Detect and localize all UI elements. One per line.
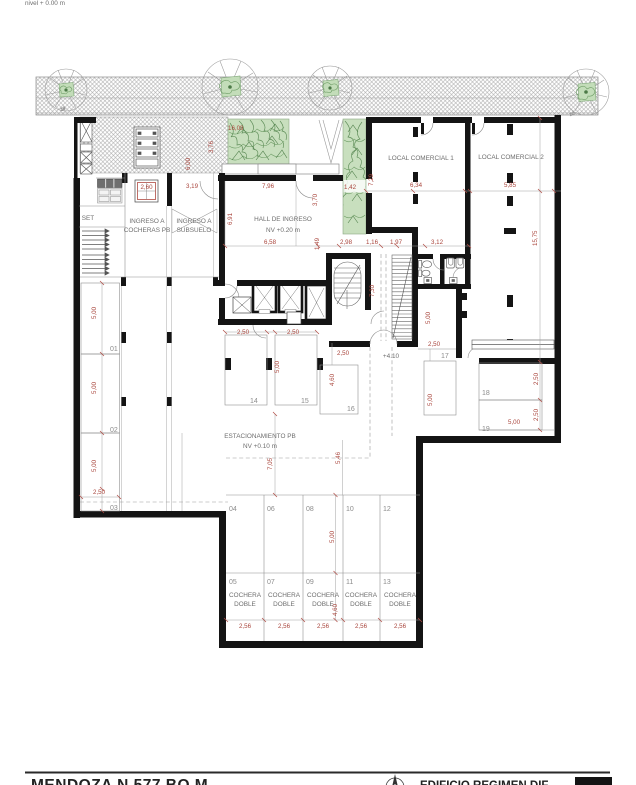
svg-text:06: 06 [267, 506, 275, 513]
svg-text:17: 17 [441, 353, 449, 360]
svg-text:2,98: 2,98 [340, 239, 353, 246]
svg-text:2,50: 2,50 [237, 329, 250, 336]
svg-text:2,50: 2,50 [287, 329, 300, 336]
svg-text:2,56: 2,56 [317, 623, 330, 630]
svg-text:2,56: 2,56 [278, 623, 291, 630]
svg-text:1,97: 1,97 [390, 239, 403, 246]
svg-text:05: 05 [229, 579, 237, 586]
svg-text:2,50: 2,50 [93, 489, 106, 496]
svg-text:5,00: 5,00 [329, 530, 336, 543]
svg-text:2,50: 2,50 [428, 341, 441, 348]
svg-text:16,09: 16,09 [228, 125, 244, 132]
svg-text:3,70: 3,70 [312, 193, 319, 206]
svg-text:nivel + 0.00 m: nivel + 0.00 m [25, 0, 65, 7]
svg-text:DOBLE: DOBLE [234, 601, 256, 608]
svg-text:DOBLE: DOBLE [273, 601, 295, 608]
svg-text:1,49: 1,49 [314, 237, 321, 250]
svg-text:5,46: 5,46 [335, 451, 342, 464]
svg-text:10: 10 [346, 506, 354, 513]
svg-text:2,50: 2,50 [533, 372, 540, 385]
svg-text:COCHERA: COCHERA [307, 592, 340, 599]
svg-text:7,96: 7,96 [262, 183, 275, 190]
svg-text:08: 08 [306, 506, 314, 513]
svg-text:LOCAL COMERCIAL 2: LOCAL COMERCIAL 2 [478, 154, 544, 161]
svg-text:SUBSUELO: SUBSUELO [177, 227, 212, 234]
svg-text:01: 01 [110, 346, 118, 353]
svg-text:4,60: 4,60 [332, 603, 339, 616]
svg-text:SET: SET [82, 215, 95, 222]
svg-text:12: 12 [383, 506, 391, 513]
svg-text:ESTACIONAMIENTO PB: ESTACIONAMIENTO PB [224, 433, 296, 440]
svg-text:11: 11 [346, 579, 353, 586]
svg-text:EDIFICIO REGIMEN DIF...: EDIFICIO REGIMEN DIF... [420, 780, 557, 785]
svg-text:3,19: 3,19 [186, 183, 199, 190]
svg-text:5,85: 5,85 [504, 182, 517, 189]
svg-text:5,00: 5,00 [508, 419, 521, 426]
svg-text:HALL DE INGRESO: HALL DE INGRESO [254, 216, 312, 223]
svg-text:COCHERA: COCHERA [229, 592, 262, 599]
svg-text:COCHERA: COCHERA [268, 592, 301, 599]
svg-text:03: 03 [110, 505, 118, 512]
svg-text:7,05: 7,05 [267, 457, 274, 470]
svg-text:7,29: 7,29 [368, 173, 375, 186]
svg-text:2,60: 2,60 [140, 184, 153, 191]
svg-text:09: 09 [306, 579, 314, 586]
svg-text:15: 15 [301, 398, 309, 405]
svg-text:COCHERAS PB: COCHERAS PB [124, 227, 171, 234]
svg-text:DOBLE: DOBLE [312, 601, 334, 608]
svg-text:13: 13 [383, 579, 391, 586]
svg-text:2,50: 2,50 [337, 350, 350, 357]
svg-text:NV +0.10 m: NV +0.10 m [243, 443, 277, 450]
svg-text:MENDOZA N 577 BO.M.: MENDOZA N 577 BO.M. [31, 777, 213, 785]
svg-text:19: 19 [482, 426, 490, 433]
svg-text:COCHERA: COCHERA [345, 592, 378, 599]
svg-text:INGRESO A: INGRESO A [176, 218, 212, 225]
svg-text:14: 14 [250, 398, 258, 405]
svg-text:18: 18 [482, 390, 490, 397]
svg-text:5,00: 5,00 [427, 393, 434, 406]
svg-text:2,56: 2,56 [355, 623, 368, 630]
svg-text:6,91: 6,91 [227, 212, 234, 225]
svg-text:2,56: 2,56 [394, 623, 407, 630]
svg-text:1,16: 1,16 [366, 239, 379, 246]
svg-text:5,00: 5,00 [274, 360, 281, 373]
svg-text:2,50: 2,50 [533, 408, 540, 421]
svg-text:5,00: 5,00 [91, 459, 98, 472]
svg-text:16: 16 [347, 406, 355, 413]
svg-text:5,00: 5,00 [91, 306, 98, 319]
svg-text:2,56: 2,56 [239, 623, 252, 630]
svg-text:NV +0.20 m: NV +0.20 m [266, 227, 300, 234]
svg-text:DOBLE: DOBLE [350, 601, 372, 608]
svg-text:LOCAL COMERCIAL 1: LOCAL COMERCIAL 1 [388, 155, 454, 162]
svg-text:04: 04 [229, 506, 237, 513]
svg-text:6,00: 6,00 [185, 157, 192, 170]
svg-text:COCHERA: COCHERA [384, 592, 417, 599]
svg-text:07: 07 [267, 579, 275, 586]
svg-text:3,12: 3,12 [431, 239, 444, 246]
svg-text:6,34: 6,34 [410, 182, 423, 189]
svg-text:5,00: 5,00 [425, 311, 432, 324]
svg-text:7,30: 7,30 [369, 284, 376, 297]
svg-text:02: 02 [110, 427, 118, 434]
svg-text:3,76: 3,76 [208, 140, 215, 153]
svg-text:+4.10: +4.10 [383, 353, 400, 360]
svg-text:5,00: 5,00 [91, 381, 98, 394]
svg-text:INGRESO A: INGRESO A [129, 218, 165, 225]
svg-text:15,75: 15,75 [532, 230, 539, 246]
svg-text:4,60: 4,60 [329, 373, 336, 386]
svg-text:6,58: 6,58 [264, 239, 277, 246]
svg-text:1,42: 1,42 [344, 184, 357, 191]
svg-text:DOBLE: DOBLE [389, 601, 411, 608]
